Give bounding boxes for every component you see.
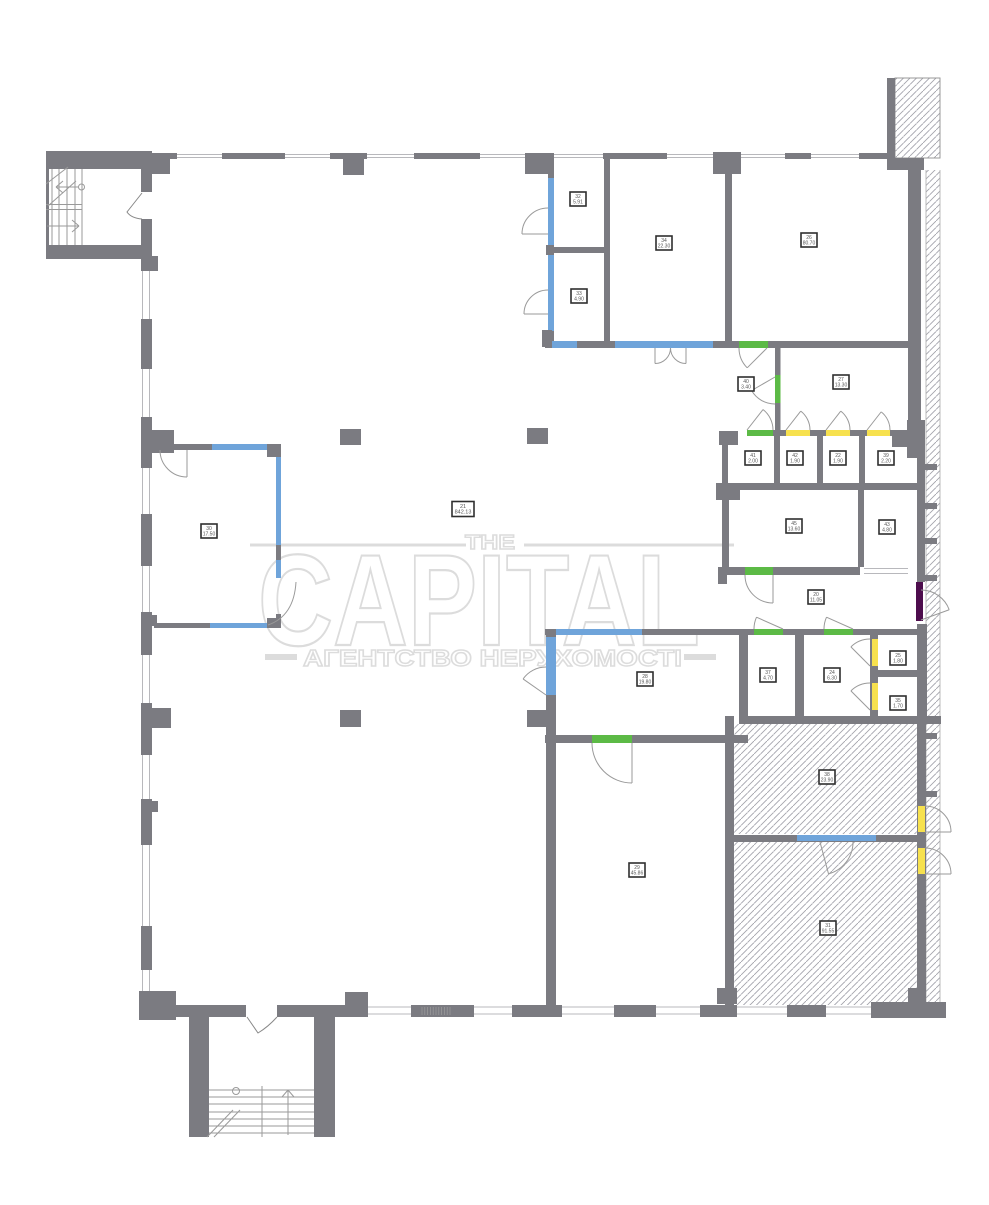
svg-text:11.05: 11.05: [810, 598, 822, 604]
svg-text:4.80: 4.80: [882, 528, 892, 534]
svg-text:3.40: 3.40: [741, 385, 751, 391]
svg-text:91.55: 91.55: [822, 929, 835, 935]
svg-text:АГЕНТСТВО НЕРУХОМОСТІ: АГЕНТСТВО НЕРУХОМОСТІ: [303, 645, 682, 671]
svg-text:23.90: 23.90: [821, 778, 834, 784]
svg-text:842.13: 842.13: [455, 510, 472, 516]
svg-text:2.20: 2.20: [881, 459, 891, 465]
svg-text:1.90: 1.90: [790, 459, 800, 465]
svg-text:6.30: 6.30: [827, 676, 837, 682]
svg-text:13.30: 13.30: [835, 383, 848, 389]
svg-text:4.70: 4.70: [763, 676, 773, 682]
svg-text:1.80: 1.80: [893, 659, 903, 665]
svg-text:1.90: 1.90: [833, 459, 843, 465]
svg-text:19.80: 19.80: [639, 680, 652, 686]
svg-text:2.00: 2.00: [748, 459, 758, 465]
svg-text:13.60: 13.60: [788, 527, 801, 533]
svg-text:1.70: 1.70: [893, 704, 903, 710]
svg-text:17.50: 17.50: [203, 532, 216, 538]
svg-text:22.30: 22.30: [658, 244, 671, 250]
svg-text:4.90: 4.90: [574, 297, 584, 303]
svg-text:45.86: 45.86: [631, 871, 644, 877]
svg-text:80.70: 80.70: [803, 241, 816, 247]
svg-text:5.91: 5.91: [573, 200, 583, 206]
